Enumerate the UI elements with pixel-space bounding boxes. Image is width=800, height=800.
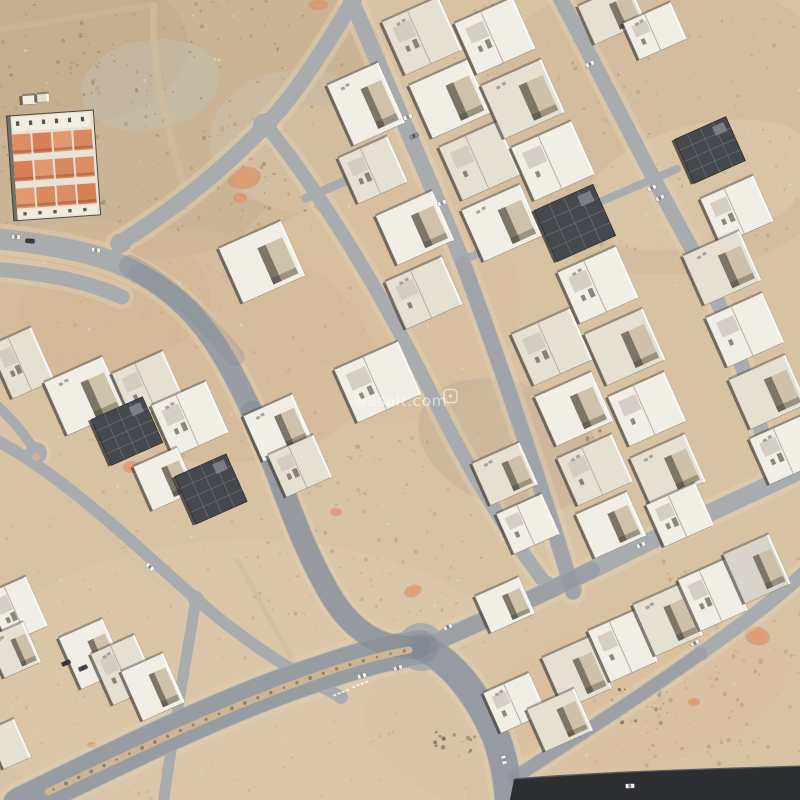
watermark: wasalt.com [354,390,457,411]
car [625,784,635,789]
car [25,238,35,243]
satellite-map-view[interactable]: wasalt.com [0,0,800,800]
satellite-image[interactable]: wasalt.com [0,0,800,800]
car [11,234,21,239]
watermark-text: wasalt.com [354,392,447,410]
orange-roof-compound [6,110,100,221]
